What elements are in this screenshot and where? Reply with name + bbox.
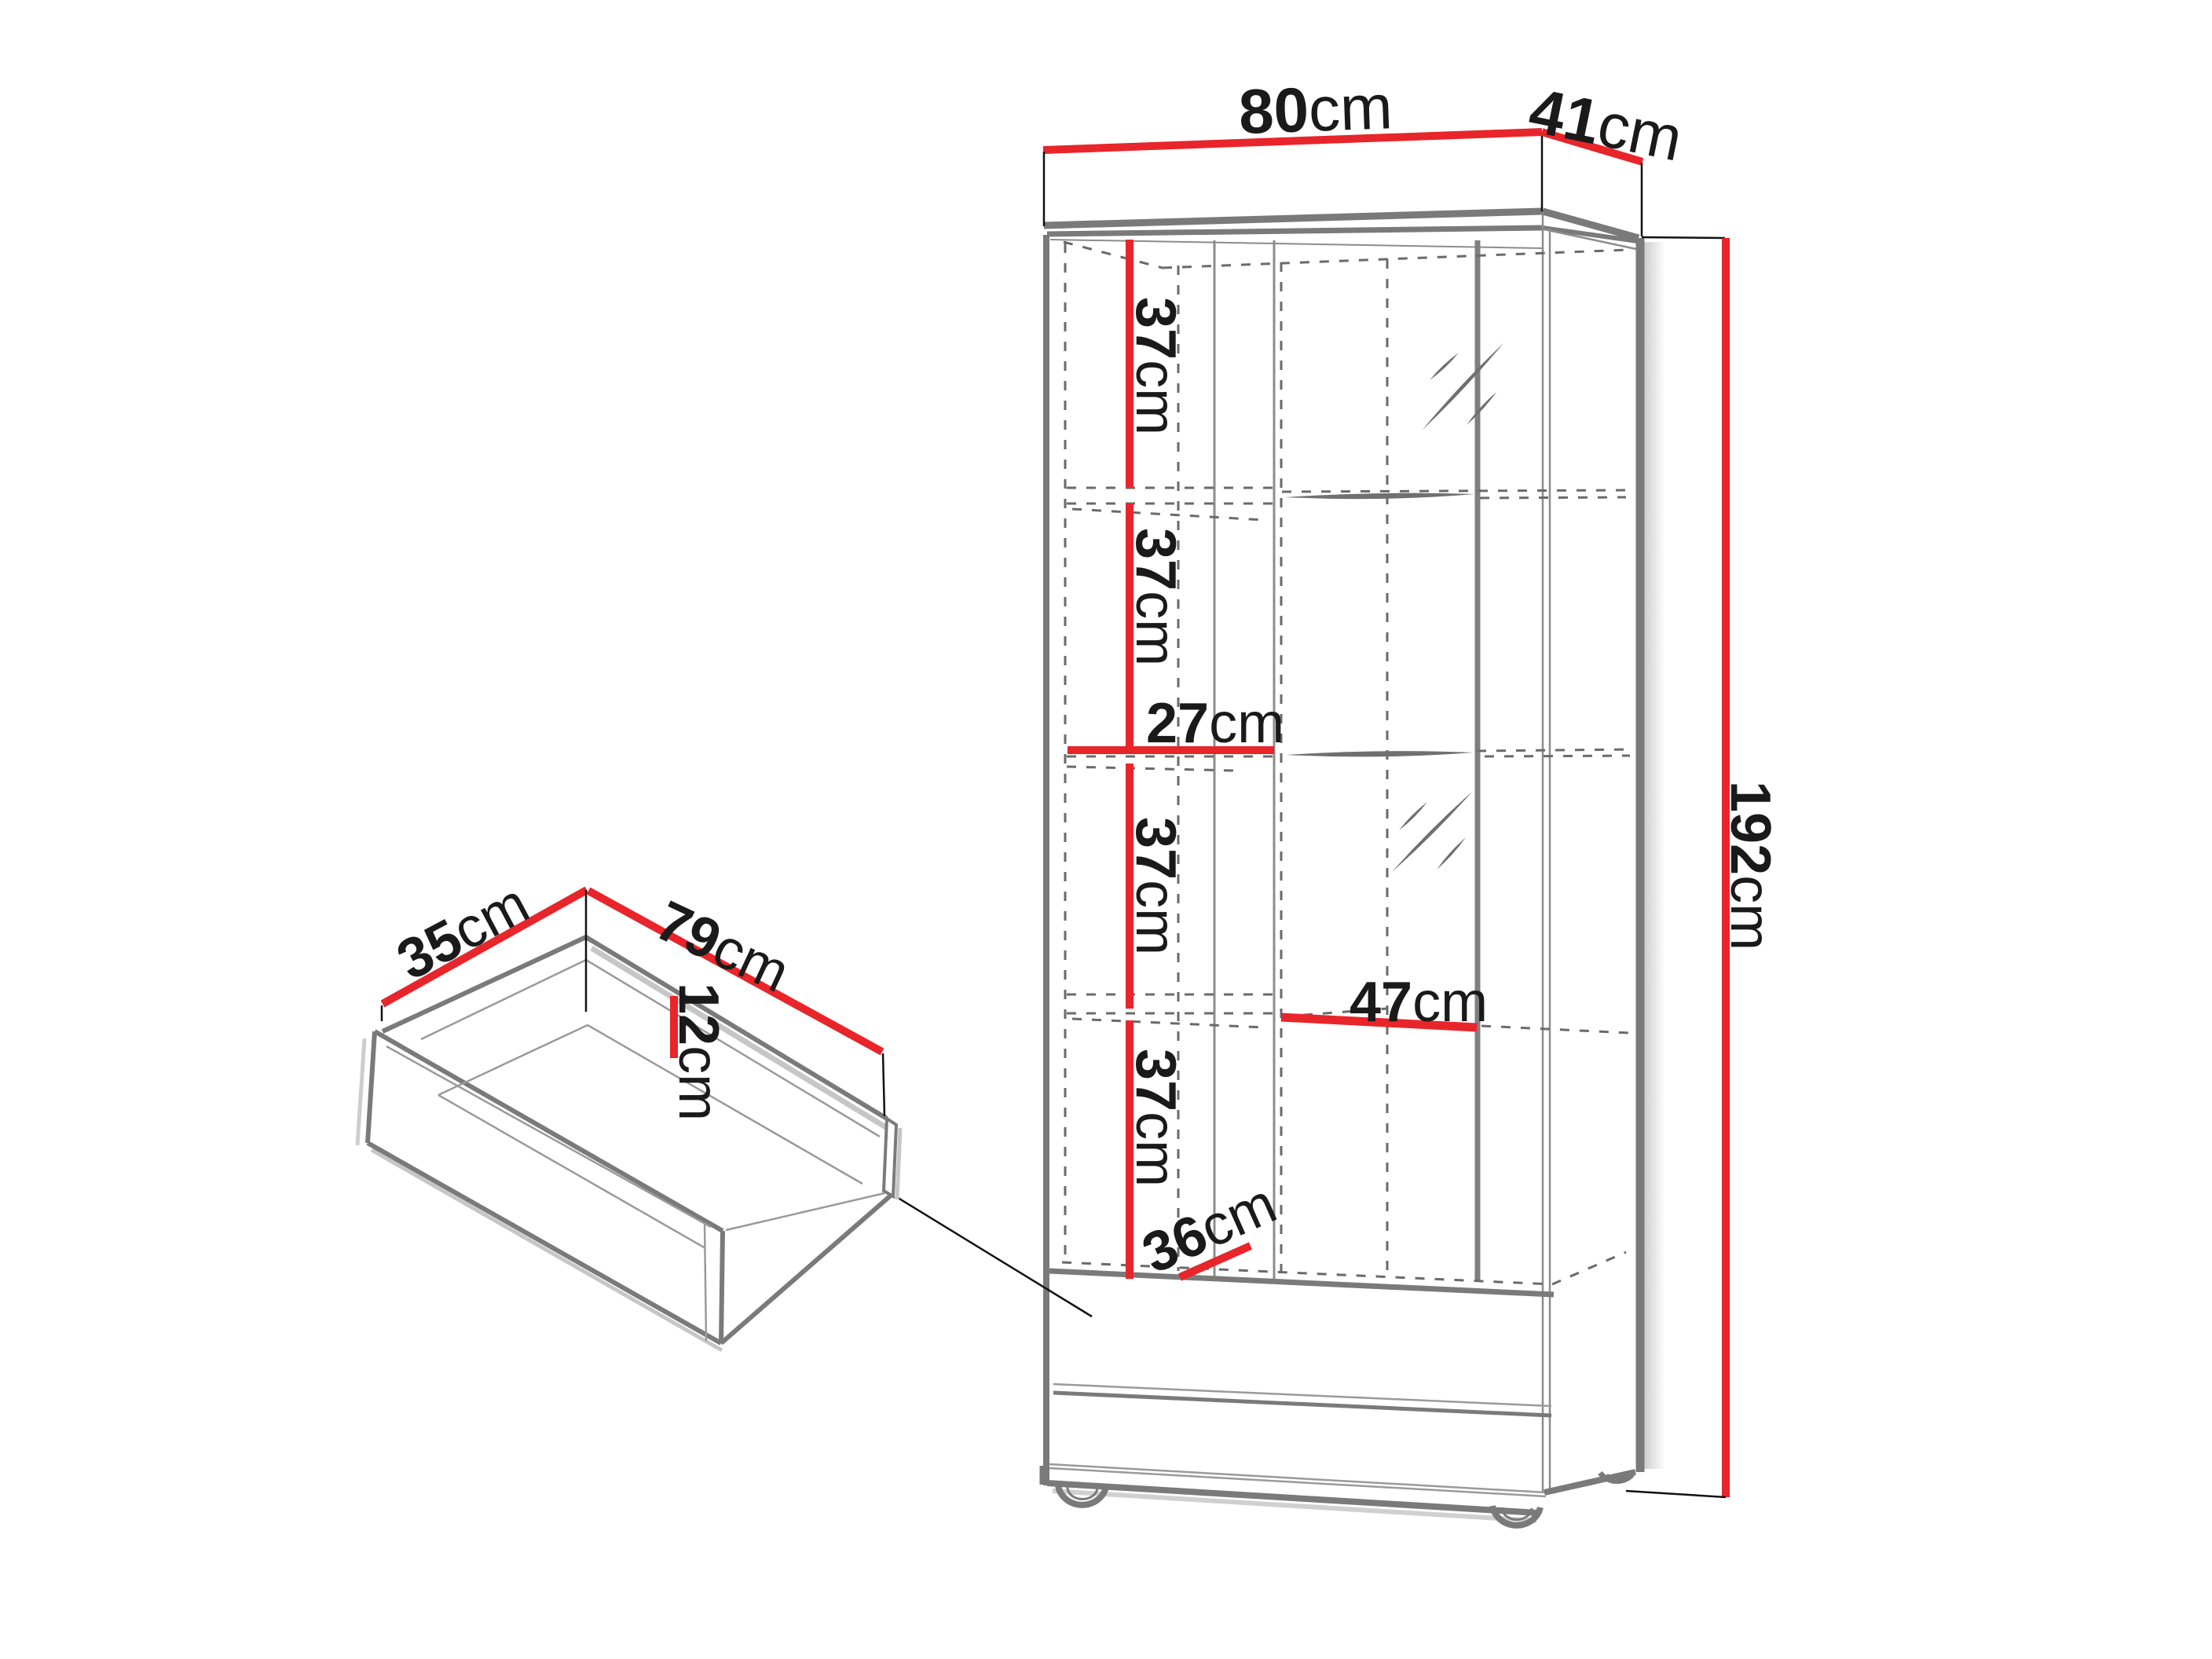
svg-text:192cm: 192cm [1719,781,1782,950]
svg-text:37cm: 37cm [1124,1049,1187,1187]
svg-text:47cm: 47cm [1350,971,1488,1034]
svg-text:37cm: 37cm [1124,528,1187,666]
svg-text:37cm: 37cm [1124,817,1187,955]
svg-text:12cm: 12cm [667,983,730,1121]
svg-text:80cm: 80cm [1237,71,1393,147]
svg-text:27cm: 27cm [1146,692,1284,755]
svg-text:37cm: 37cm [1124,297,1187,435]
